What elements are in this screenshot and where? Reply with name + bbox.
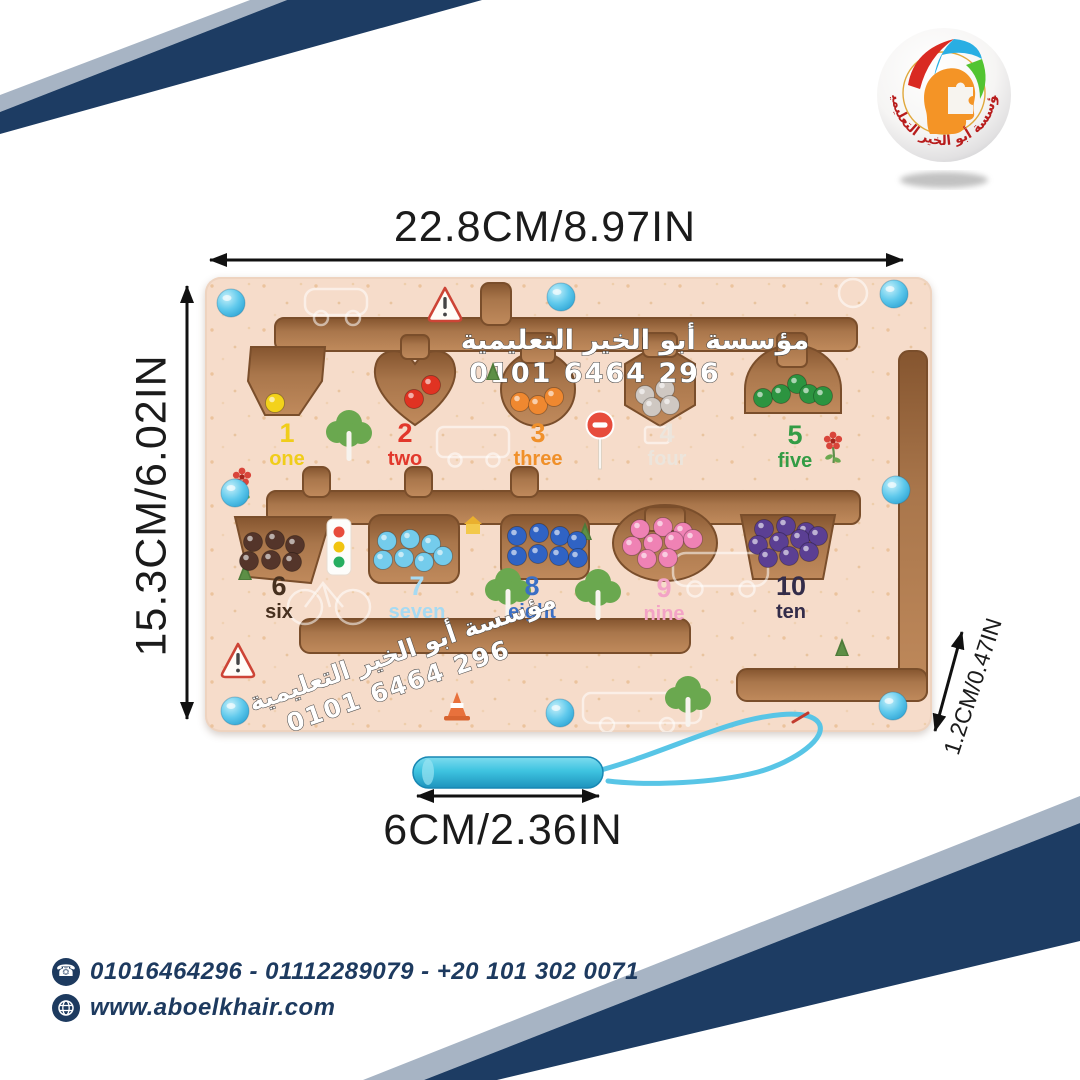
phone-row: ☎ 01016464296 - 01112289079 - +20 101 30…	[52, 958, 639, 986]
globe-icon	[52, 994, 80, 1022]
website-row: www.aboelkhair.com	[52, 994, 639, 1022]
contact-info: ☎ 01016464296 - 01112289079 - +20 101 30…	[52, 958, 639, 1022]
pen-string	[601, 714, 820, 783]
product-poster: مؤسسة أبو الخير التعليمية	[0, 0, 1080, 1080]
phone-numbers: 01016464296 - 01112289079 - +20 101 302 …	[90, 958, 639, 986]
height-dimension-label: 15.3CM/6.02IN	[128, 357, 177, 657]
website-url: www.aboelkhair.com	[90, 994, 336, 1022]
pen-dimension-label: 6CM/2.36IN	[303, 806, 703, 855]
width-dimension-label: 22.8CM/8.97IN	[295, 203, 795, 252]
magnetic-pen	[413, 757, 603, 788]
phone-icon: ☎	[52, 958, 80, 986]
